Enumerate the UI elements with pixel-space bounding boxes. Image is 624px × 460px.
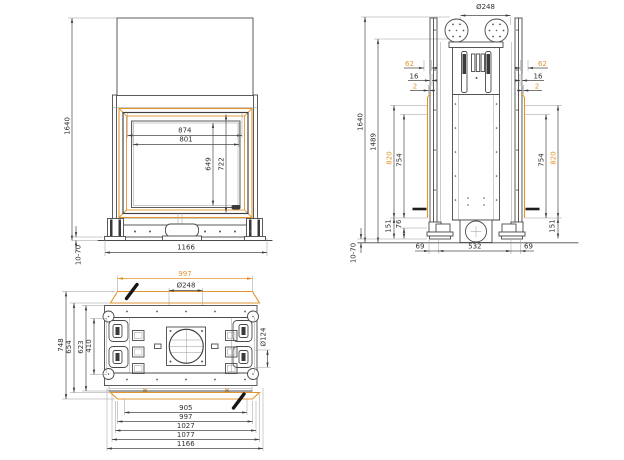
dim-side-panel-offset-right: 16: [534, 73, 543, 81]
dim-plan-inner-depth: 623: [77, 340, 85, 353]
dim-side-inset-right: 69: [524, 243, 533, 251]
dim-front-glass-height: 649: [205, 157, 213, 170]
dim-front-overall-height: 1640: [64, 117, 72, 135]
dim-side-edge-offset-right: 2: [535, 83, 539, 91]
dim-side-frame-height-left: 820: [386, 151, 394, 164]
dim-plan-flue-diameter: Ø248: [177, 282, 196, 290]
front-panel-edge: [430, 18, 441, 222]
dim-plan-frame-width-top: 997: [178, 270, 191, 278]
dim-plan-width-905: 905: [179, 404, 192, 412]
technical-drawing: 1640 874 801 649: [0, 0, 624, 460]
decor-frame-front: [119, 109, 252, 218]
dim-plan-width-1077: 1077: [177, 431, 195, 439]
air-inlet: [166, 224, 199, 237]
dim-plan-overall-depth: 748: [57, 338, 65, 351]
dim-plan-width-1166: 1166: [177, 440, 195, 448]
foot-pad-right: [245, 237, 266, 241]
dim-plan-body-depth: 654: [65, 340, 73, 354]
front-view: 1640 874 801 649: [64, 18, 273, 265]
dim-side-feet-range: 10-70: [350, 243, 358, 263]
dim-side-flue-diameter: Ø248: [476, 3, 495, 11]
flue-collar-left: [445, 19, 468, 42]
dim-plan-width-997: 997: [179, 413, 192, 421]
dim-side-panel-offset-left: 16: [410, 73, 419, 81]
plan-view: 997 Ø248 Ø124: [57, 270, 271, 451]
side-view: Ø248 1640 1489: [350, 3, 579, 263]
flue-collar-right: [485, 19, 508, 42]
dim-side-inset-left: 69: [416, 243, 425, 251]
rear-panel-edge: [512, 18, 523, 222]
dim-side-foot-zone: 76: [395, 219, 403, 228]
dim-plan-bracket-span: 410: [85, 339, 93, 352]
hood-outline: [117, 18, 253, 96]
dim-side-base-depth: 532: [468, 243, 481, 251]
dim-side-top-offset-right: 62: [538, 60, 547, 68]
dim-side-base-height-left: 151: [385, 219, 393, 232]
dim-front-frame-width-outer: 874: [178, 127, 192, 135]
dim-front-door-height: 722: [218, 157, 226, 170]
decor-frame-plan-top: [111, 292, 260, 304]
dim-front-frame-width-inner: 801: [179, 136, 192, 144]
dim-side-edge-offset-left: 2: [413, 83, 417, 91]
foot-pad-left: [105, 237, 126, 241]
dim-front-overall-width: 1166: [177, 244, 195, 252]
dim-side-top-offset-left: 62: [405, 60, 414, 68]
dim-front-feet-range: 10-70: [75, 245, 83, 265]
dim-side-frame-height-right: 820: [550, 151, 558, 164]
dim-side-overall-height: 1640: [357, 113, 365, 131]
dim-side-body-height: 1489: [370, 133, 378, 151]
dim-plan-width-1027: 1027: [177, 422, 195, 430]
dim-side-glass-height-left: 754: [396, 153, 404, 167]
view-marker-slash-bottom: [234, 394, 245, 408]
firebox-body-side: [453, 95, 500, 221]
technical-drawing-page: 1640 874 801 649: [0, 0, 624, 460]
dim-side-glass-height-right: 754: [538, 153, 546, 167]
door-latch: [232, 205, 241, 210]
dim-plan-corner-diameter: Ø124: [260, 327, 268, 346]
dim-side-base-height-right: 151: [549, 219, 557, 232]
decor-frame-plan-bottom: [111, 393, 260, 400]
